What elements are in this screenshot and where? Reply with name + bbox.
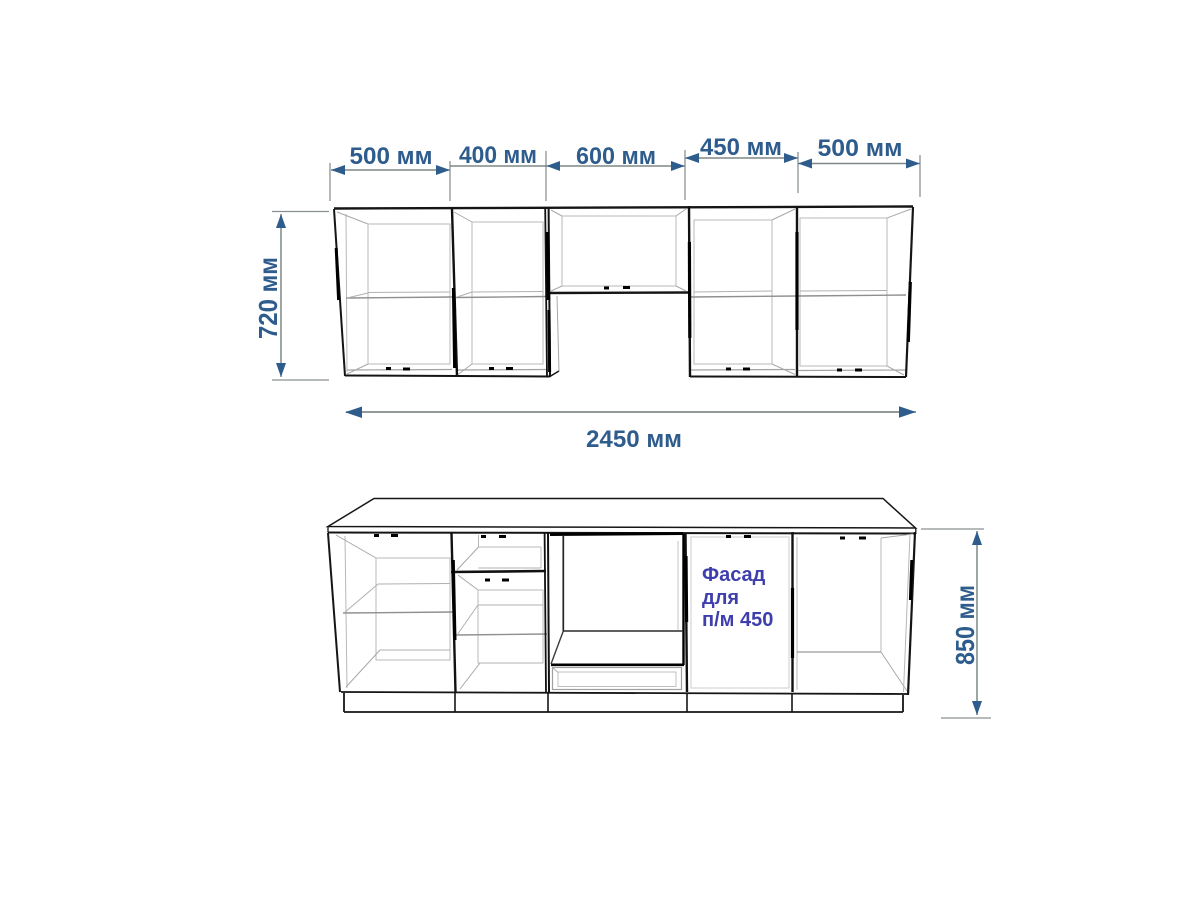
svg-text:2450 мм: 2450 мм [586,426,682,453]
svg-text:720 мм: 720 мм [253,257,283,339]
svg-text:500 мм: 500 мм [818,135,903,162]
svg-text:500 мм: 500 мм [350,143,433,170]
svg-text:для: для [702,587,739,609]
svg-text:450 мм: 450 мм [700,134,782,161]
svg-text:400 мм: 400 мм [459,142,537,169]
svg-text:850 мм: 850 мм [950,585,980,665]
svg-text:600 мм: 600 мм [576,143,656,170]
svg-text:п/м 450: п/м 450 [702,609,773,631]
svg-text:Фасад: Фасад [702,564,766,586]
